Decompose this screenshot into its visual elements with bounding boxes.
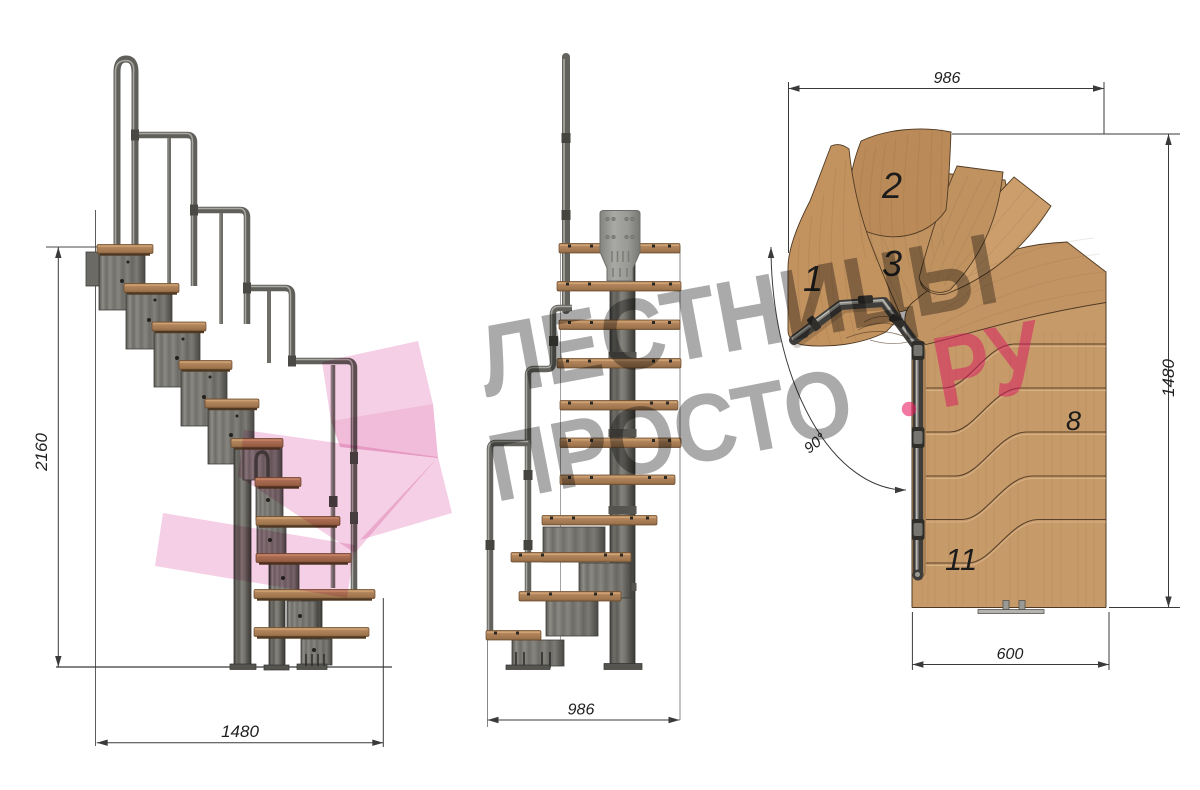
svg-text:1480: 1480: [1159, 359, 1178, 397]
svg-text:600: 600: [997, 646, 1024, 663]
svg-text:РУ: РУ: [925, 300, 1053, 430]
svg-text:2: 2: [881, 165, 902, 206]
svg-text:2160: 2160: [32, 433, 51, 472]
svg-text:986: 986: [934, 70, 961, 87]
svg-text:986: 986: [568, 702, 595, 719]
svg-text:11: 11: [945, 542, 977, 577]
svg-text:8: 8: [1066, 406, 1081, 436]
svg-text:1480: 1480: [221, 722, 259, 741]
